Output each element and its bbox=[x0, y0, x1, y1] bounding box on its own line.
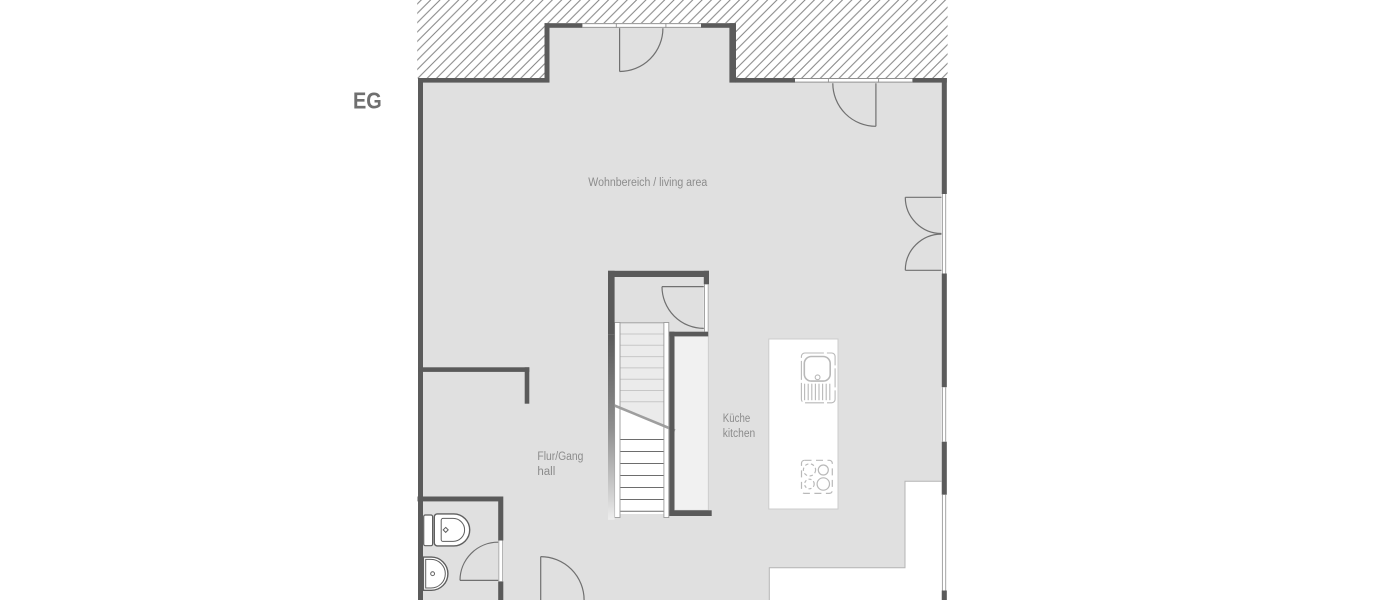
svg-text:Flur/Gang: Flur/Gang bbox=[537, 451, 583, 463]
svg-text:kitchen: kitchen bbox=[723, 428, 755, 440]
svg-text:Küche: Küche bbox=[723, 413, 750, 425]
svg-text:hall: hall bbox=[537, 466, 555, 478]
svg-text:EG: EG bbox=[353, 88, 382, 114]
svg-text:Wohnbereich / living area: Wohnbereich / living area bbox=[588, 177, 708, 189]
